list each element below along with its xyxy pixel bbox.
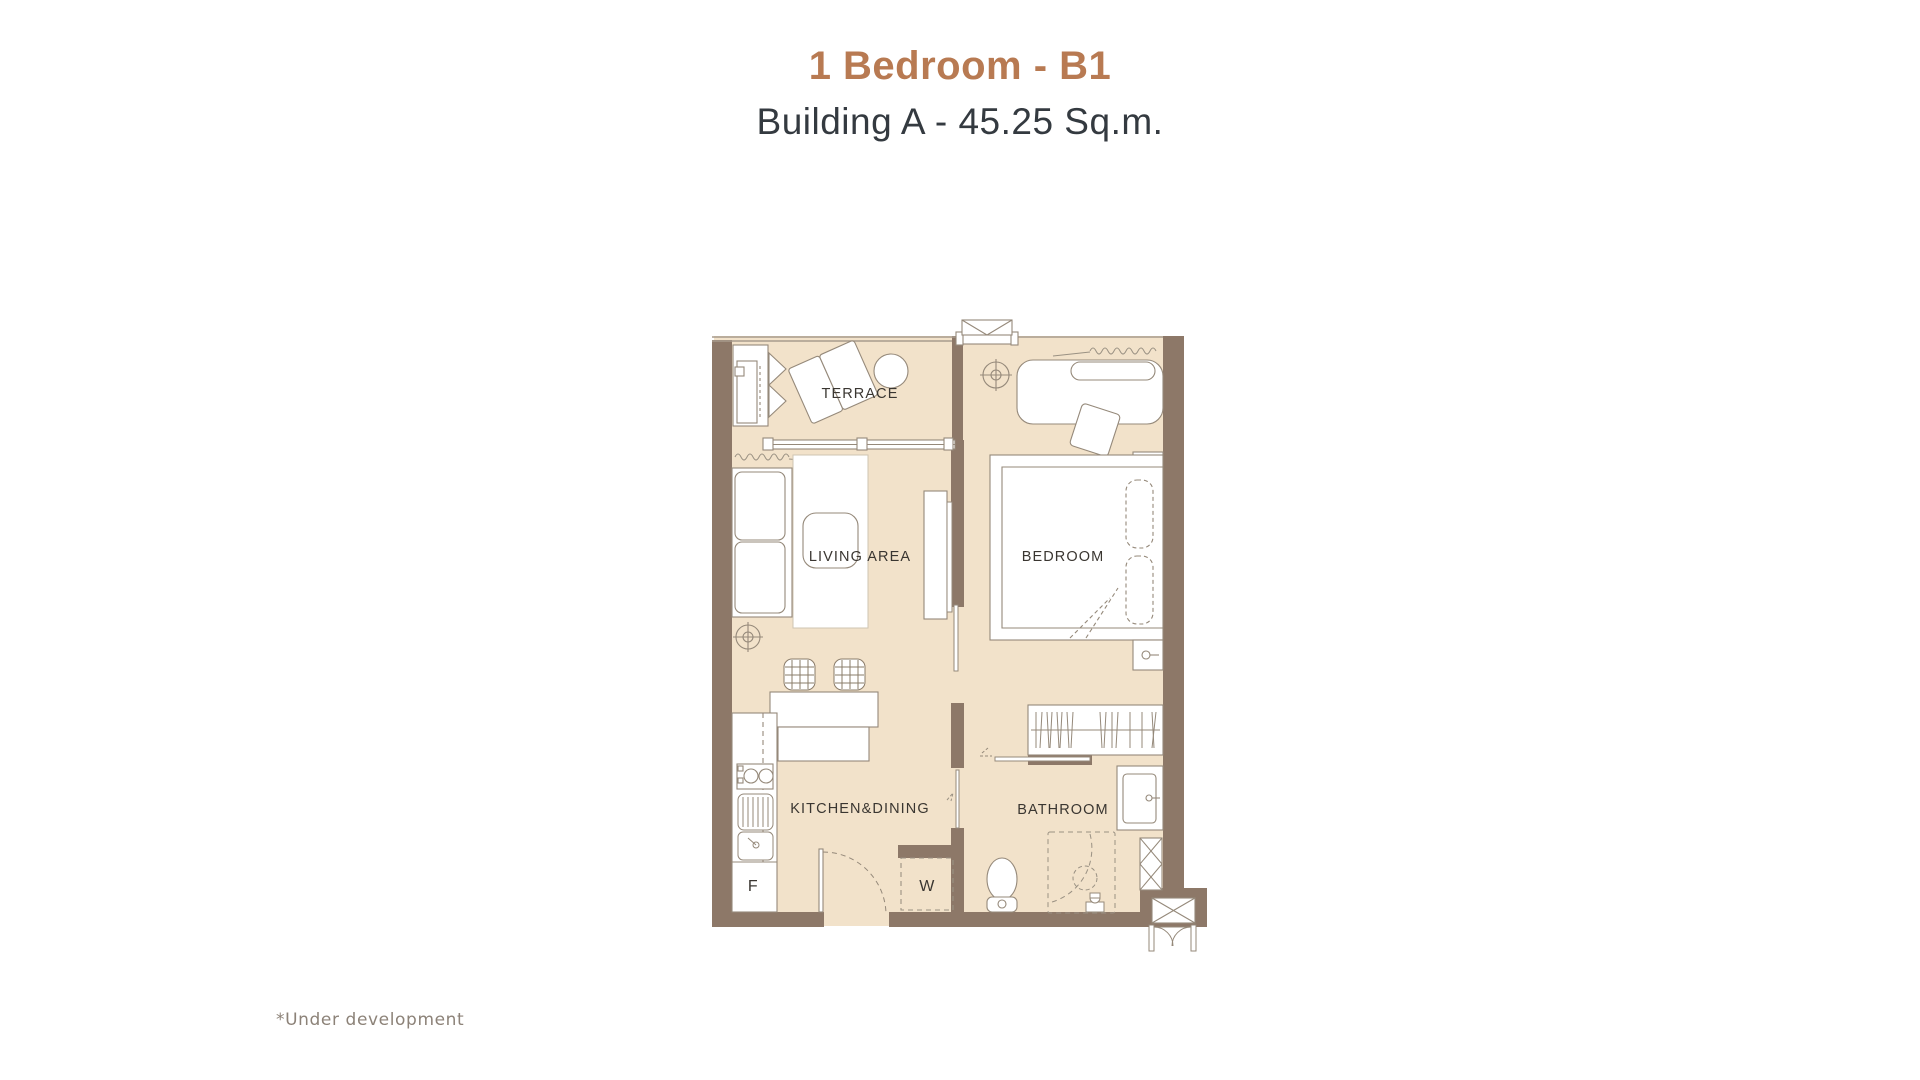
bedroom-door bbox=[956, 320, 1018, 345]
ac-condenser-unit bbox=[733, 345, 768, 426]
plan-subtitle: Building A - 45.25 Sq.m. bbox=[0, 101, 1920, 143]
dining-chair bbox=[834, 659, 865, 690]
plan-title: 1 Bedroom - B1 bbox=[0, 44, 1920, 89]
wardrobe bbox=[1028, 705, 1163, 755]
terrace-side-table bbox=[874, 354, 908, 388]
room-label-kitchen: KITCHEN&DINING bbox=[790, 801, 929, 817]
shaft-double-door bbox=[1149, 925, 1196, 951]
kitchen-island bbox=[778, 727, 869, 761]
room-label-living: LIVING AREA bbox=[809, 549, 911, 565]
marker-fridge: F bbox=[748, 878, 758, 895]
rug bbox=[793, 455, 868, 628]
room-label-terrace: TERRACE bbox=[822, 386, 899, 402]
duct-shaft bbox=[1140, 838, 1162, 890]
tv bbox=[947, 502, 952, 612]
terrace-window bbox=[763, 438, 955, 450]
dining-table bbox=[770, 692, 878, 727]
vanity-sink bbox=[1117, 766, 1163, 830]
stove bbox=[737, 764, 773, 789]
tv-console bbox=[924, 491, 947, 619]
exterior-shaft bbox=[1152, 898, 1195, 923]
dining-chair bbox=[784, 659, 815, 690]
toilet bbox=[987, 858, 1017, 912]
sofa bbox=[732, 468, 792, 617]
sliding-door-corridor bbox=[956, 770, 959, 828]
marker-washer: W bbox=[919, 878, 935, 895]
room-label-bathroom: BATHROOM bbox=[1017, 802, 1109, 818]
room-label-bedroom: BEDROOM bbox=[1022, 549, 1105, 565]
header: 1 Bedroom - B1 Building A - 45.25 Sq.m. bbox=[0, 44, 1920, 143]
nightstand bbox=[1133, 640, 1163, 670]
sink bbox=[738, 794, 773, 860]
sliding-door-bedroom bbox=[954, 605, 958, 671]
bed bbox=[990, 455, 1163, 640]
footnote: *Under development bbox=[276, 1010, 464, 1030]
floorplan: TERRACE LIVING AREA BEDROOM KITCHEN&DINI… bbox=[700, 315, 1225, 960]
